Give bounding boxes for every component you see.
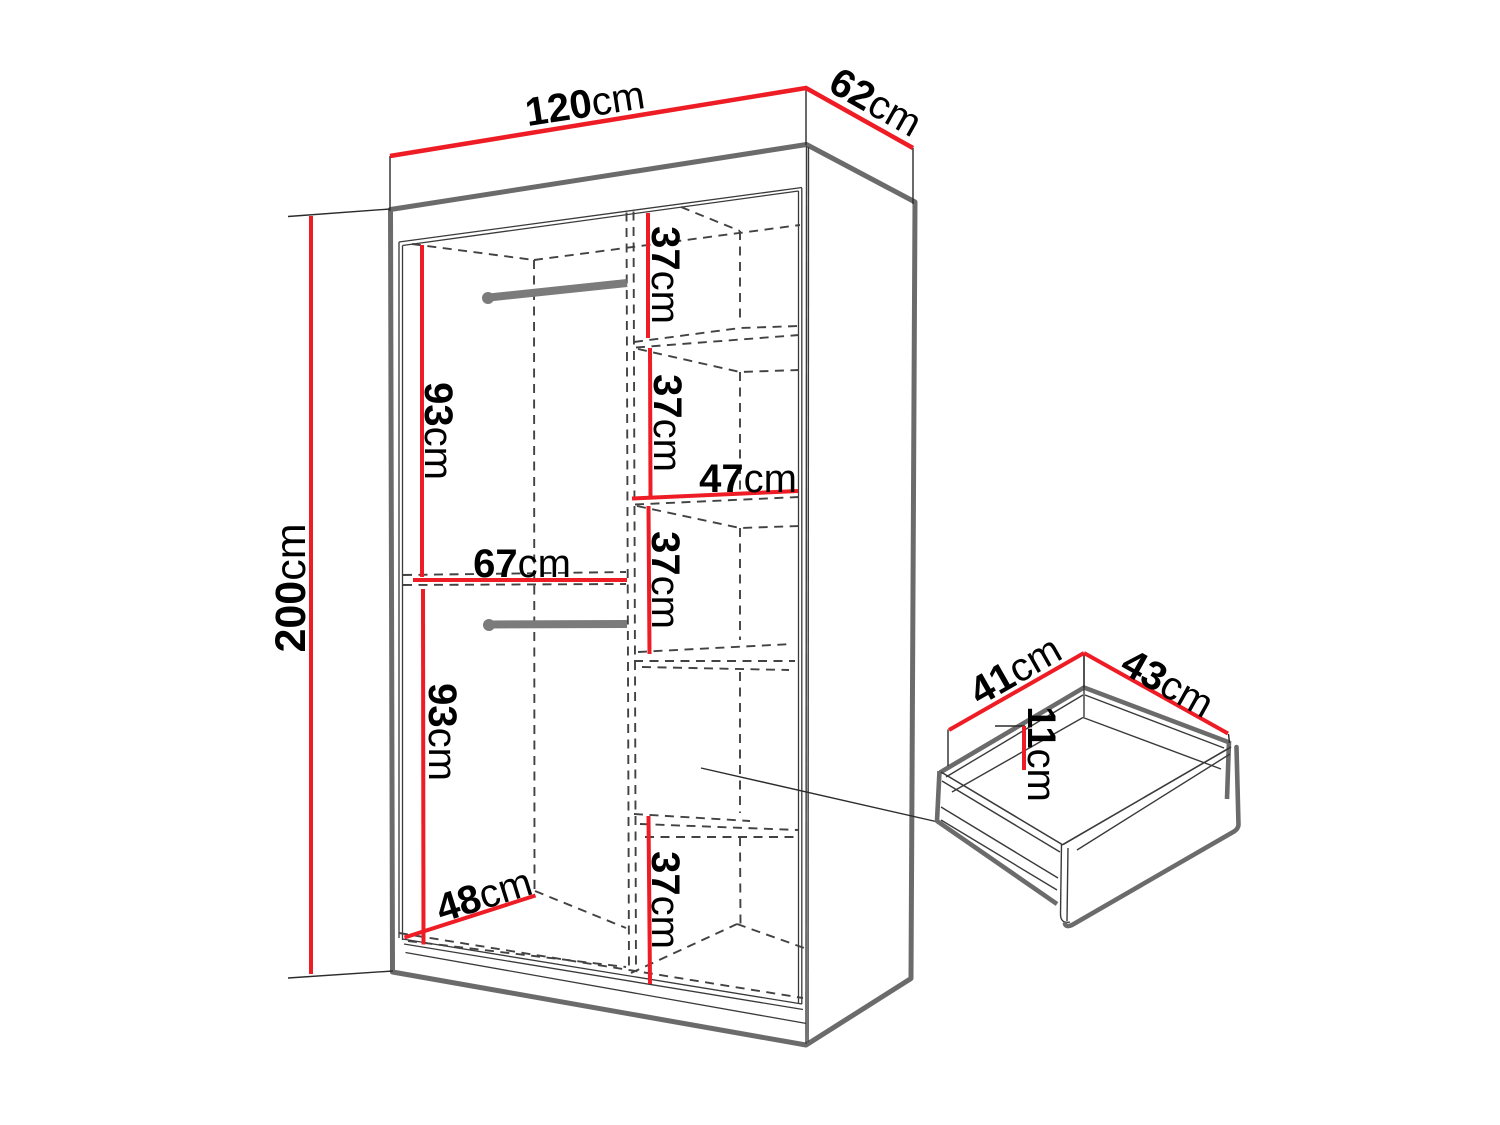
- svg-text:11cm: 11cm: [1019, 706, 1063, 802]
- svg-text:37cm: 37cm: [643, 531, 687, 629]
- svg-text:37cm: 37cm: [643, 226, 687, 324]
- svg-text:67cm: 67cm: [473, 542, 571, 586]
- svg-text:37cm: 37cm: [645, 374, 689, 472]
- svg-text:93cm: 93cm: [420, 683, 464, 781]
- svg-text:47cm: 47cm: [699, 457, 797, 501]
- svg-text:37cm: 37cm: [643, 851, 687, 949]
- svg-text:200cm: 200cm: [267, 523, 315, 652]
- svg-text:93cm: 93cm: [416, 382, 460, 480]
